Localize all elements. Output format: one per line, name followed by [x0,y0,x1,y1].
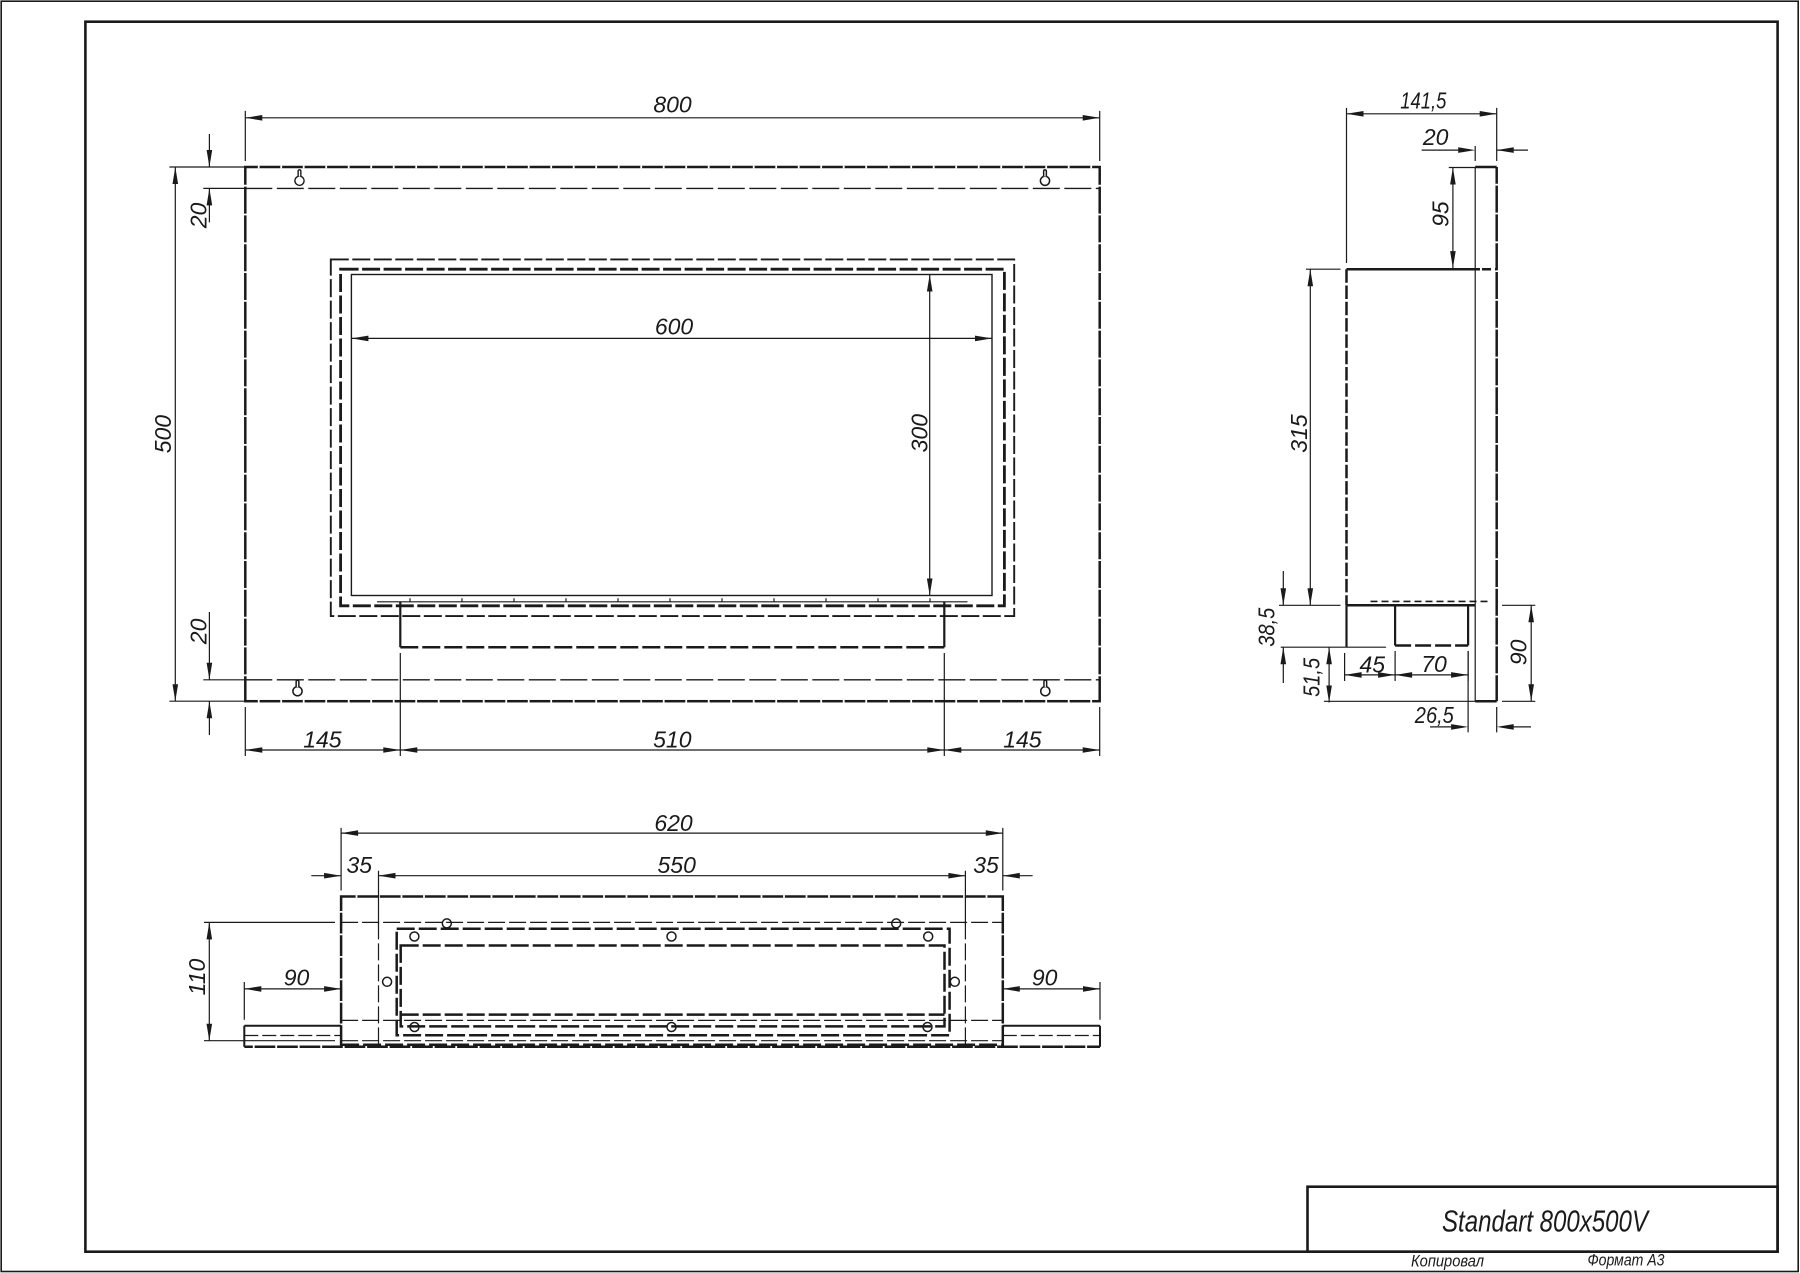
svg-text:51,5: 51,5 [1298,658,1324,697]
svg-text:800: 800 [653,91,692,117]
svg-text:620: 620 [654,810,693,836]
svg-text:35: 35 [347,852,373,878]
svg-text:90: 90 [284,964,310,990]
svg-text:35: 35 [973,852,999,878]
svg-text:315: 315 [1286,414,1312,453]
svg-text:145: 145 [303,727,342,753]
svg-text:Формат А3: Формат А3 [1588,1251,1665,1270]
svg-text:510: 510 [653,727,692,753]
svg-text:90: 90 [1506,639,1532,665]
svg-text:600: 600 [655,314,694,340]
svg-text:110: 110 [184,958,210,995]
svg-text:20: 20 [1422,124,1449,150]
svg-text:145: 145 [1003,727,1042,753]
svg-text:45: 45 [1360,652,1386,678]
svg-text:38,5: 38,5 [1253,608,1279,647]
svg-text:Standart 800x500V: Standart 800x500V [1442,1204,1651,1239]
svg-text:95: 95 [1428,201,1454,227]
svg-text:90: 90 [1032,964,1058,990]
svg-text:300: 300 [906,414,932,453]
svg-text:20: 20 [185,203,211,230]
svg-text:500: 500 [150,415,176,454]
svg-text:141,5: 141,5 [1400,88,1446,114]
svg-text:70: 70 [1421,651,1447,677]
svg-text:26,5: 26,5 [1414,702,1454,728]
svg-text:20: 20 [185,618,211,645]
svg-text:Копировал: Копировал [1411,1252,1484,1271]
svg-text:550: 550 [658,852,697,878]
